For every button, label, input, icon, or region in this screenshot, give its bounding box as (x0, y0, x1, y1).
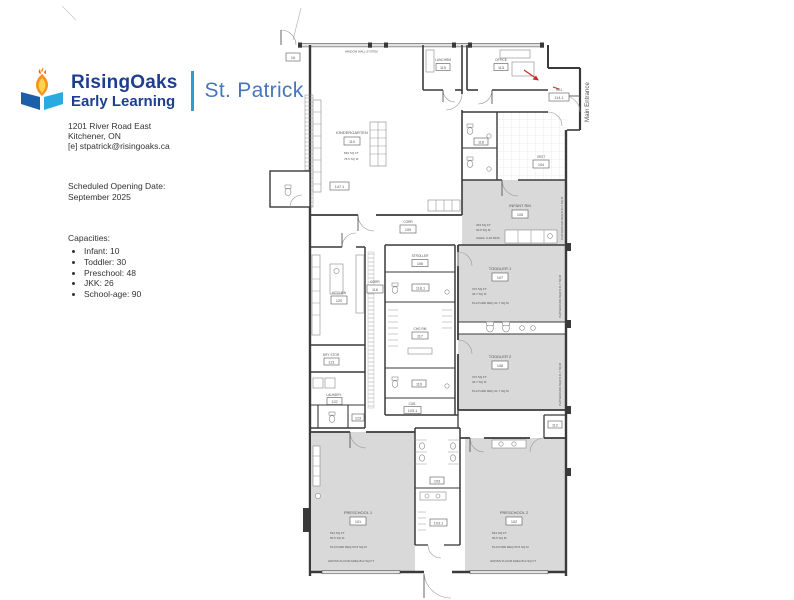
room-laundry: LAUNDRY 122 (326, 393, 342, 405)
floor-plan: Main Entrance WINDOW WALL SYSTEM 16 147.… (0, 0, 794, 600)
svg-text:544 SQ FT: 544 SQ FT (330, 531, 345, 535)
svg-text:106: 106 (417, 262, 423, 266)
room-chg: CHG RM 117 (412, 327, 428, 339)
svg-text:107: 107 (497, 276, 503, 280)
svg-text:110: 110 (349, 140, 355, 144)
corridor-tag-b: CORR 116 (367, 280, 383, 293)
dimension-ladder (368, 252, 374, 408)
svg-text:PRESCHOOL 1: PRESCHOOL 1 (344, 510, 373, 515)
room-drystor: DRY STOR 121 (323, 353, 340, 365)
svg-text:TODDLER 2: TODDLER 2 (489, 354, 512, 359)
corridor-tag-a: CORR 109 (400, 220, 416, 233)
room-kitchen: KITCHEN 120 (331, 291, 347, 304)
room-wr-hall: 118 (474, 138, 488, 145)
svg-text:CHG RM: CHG RM (414, 327, 427, 331)
svg-text:846 SQ FT: 846 SQ FT (344, 151, 359, 155)
svg-text:GROSS FLOOR AREA 814 SQ FT: GROSS FLOOR AREA 814 SQ FT (328, 559, 374, 563)
svg-text:119: 119 (416, 383, 422, 387)
svg-text:118: 118 (478, 141, 484, 145)
svg-text:120: 120 (336, 299, 342, 303)
svg-text:PLAYGRD REQ 41.7 SQ M: PLAYGRD REQ 41.7 SQ M (472, 389, 509, 393)
svg-text:123: 123 (355, 417, 361, 421)
svg-text:34.7 SQ M: 34.7 SQ M (472, 292, 487, 296)
room-stroller: STROLLER 106 (412, 254, 430, 267)
svg-text:LUNCHRM: LUNCHRM (435, 58, 451, 62)
svg-text:115: 115 (440, 66, 446, 70)
svg-text:GROSS FLOOR AREA 814 SQ FT: GROSS FLOOR AREA 814 SQ FT (490, 559, 536, 563)
svg-text:PLAYGROUND REQ'D 41.7 SQ M: PLAYGROUND REQ'D 41.7 SQ M (558, 274, 562, 318)
room-wr-b: 119 (412, 380, 426, 387)
svg-text:PRESCHOOL 2: PRESCHOOL 2 (500, 510, 529, 515)
svg-text:103: 103 (434, 480, 440, 484)
svg-text:103.1: 103.1 (434, 522, 444, 526)
room-toddler2-fill (458, 334, 566, 410)
room-wr-laundry: 123 (352, 414, 364, 421)
info-sheet-page: RisingOaks Early Learning St. Patrick 12… (0, 0, 794, 600)
svg-text:DRY STOR: DRY STOR (323, 353, 340, 357)
svg-text:112: 112 (552, 424, 558, 428)
room-jan: 112 (548, 421, 562, 428)
window-note: WINDOW WALL SYSTEM (345, 50, 378, 54)
svg-text:116: 116 (372, 288, 378, 292)
wr-tag: 147.1 (335, 185, 345, 189)
svg-text:118.1: 118.1 (416, 287, 425, 291)
svg-text:108: 108 (497, 364, 503, 368)
svg-text:STROLLER: STROLLER (412, 254, 430, 258)
svg-text:PLAYGRD REQ 50.5 SQ M: PLAYGRD REQ 50.5 SQ M (330, 545, 367, 549)
svg-text:104: 104 (538, 163, 544, 167)
svg-text:KITCHEN: KITCHEN (332, 291, 347, 295)
svg-text:30.9 SQ M: 30.9 SQ M (476, 228, 491, 232)
svg-text:105: 105 (517, 213, 523, 217)
main-entrance-label: Main Entrance (584, 82, 591, 122)
svg-text:LAUNDRY: LAUNDRY (326, 393, 342, 397)
svg-text:TODDLER 1: TODDLER 1 (489, 266, 512, 271)
room-wrcorr: 103 103.1 (430, 477, 447, 526)
room-kindergarten: KINDERGARTEN 110 846 SQ FT 78.6 SQ M (336, 130, 368, 161)
svg-text:544 SQ FT: 544 SQ FT (492, 531, 507, 535)
svg-text:PLAYGRD REQ 50.5 SQ M: PLAYGRD REQ 50.5 SQ M (492, 545, 529, 549)
vestibule-floor (497, 112, 567, 180)
svg-text:114.1: 114.1 (554, 96, 563, 100)
svg-text:373 SQ FT: 373 SQ FT (472, 375, 487, 379)
svg-text:INFANT RM: INFANT RM (509, 203, 530, 208)
svg-text:34.7 SQ M: 34.7 SQ M (472, 380, 487, 384)
svg-text:PLAYGROUND REQ'D 41.7 SQ M: PLAYGROUND REQ'D 41.7 SQ M (560, 196, 564, 240)
svg-text:AGES: 0-18 MOS: AGES: 0-18 MOS (476, 236, 500, 240)
svg-text:109: 109 (405, 228, 411, 232)
svg-text:113: 113 (498, 66, 504, 70)
svg-text:KINDERGARTEN: KINDERGARTEN (336, 130, 368, 135)
corner-tick (62, 6, 76, 20)
svg-text:122: 122 (331, 400, 337, 404)
room-wr-a: 118.1 (412, 284, 429, 291)
svg-text:117: 117 (417, 335, 423, 339)
svg-text:CUB: CUB (409, 402, 416, 406)
svg-text:OFFICE: OFFICE (495, 58, 507, 62)
room-lunchrm: LUNCHRM 115 (435, 58, 451, 71)
svg-text:121: 121 (328, 361, 334, 365)
room-preschool1-fill (312, 432, 415, 572)
room-cub: CUB 103.1 (404, 402, 421, 414)
svg-text:101: 101 (355, 520, 361, 524)
svg-text:VEST: VEST (537, 155, 545, 159)
door-tag: 16 (291, 56, 295, 60)
svg-text:PLAYGRD REQ 41.7 SQ M: PLAYGRD REQ 41.7 SQ M (472, 301, 509, 305)
svg-text:103.1: 103.1 (408, 409, 418, 413)
svg-text:CORR: CORR (403, 220, 413, 224)
svg-text:50.5 SQ M: 50.5 SQ M (492, 536, 507, 540)
svg-text:333 SQ FT: 333 SQ FT (476, 223, 491, 227)
room-hb1: HB1 114.1 (549, 88, 569, 101)
svg-text:78.6 SQ M: 78.6 SQ M (344, 157, 359, 161)
room-preschool2-fill (465, 438, 566, 572)
svg-text:102: 102 (511, 520, 517, 524)
svg-text:373 SQ FT: 373 SQ FT (472, 287, 487, 291)
svg-text:HB1: HB1 (556, 88, 562, 92)
svg-text:50.5 SQ M: 50.5 SQ M (330, 536, 345, 540)
room-toddler1-fill (458, 245, 566, 322)
svg-text:PLAYGROUND REQ'D 41.7 SQ M: PLAYGROUND REQ'D 41.7 SQ M (558, 362, 562, 406)
svg-text:CORR: CORR (370, 280, 380, 284)
room-office: OFFICE 113 (494, 58, 508, 71)
